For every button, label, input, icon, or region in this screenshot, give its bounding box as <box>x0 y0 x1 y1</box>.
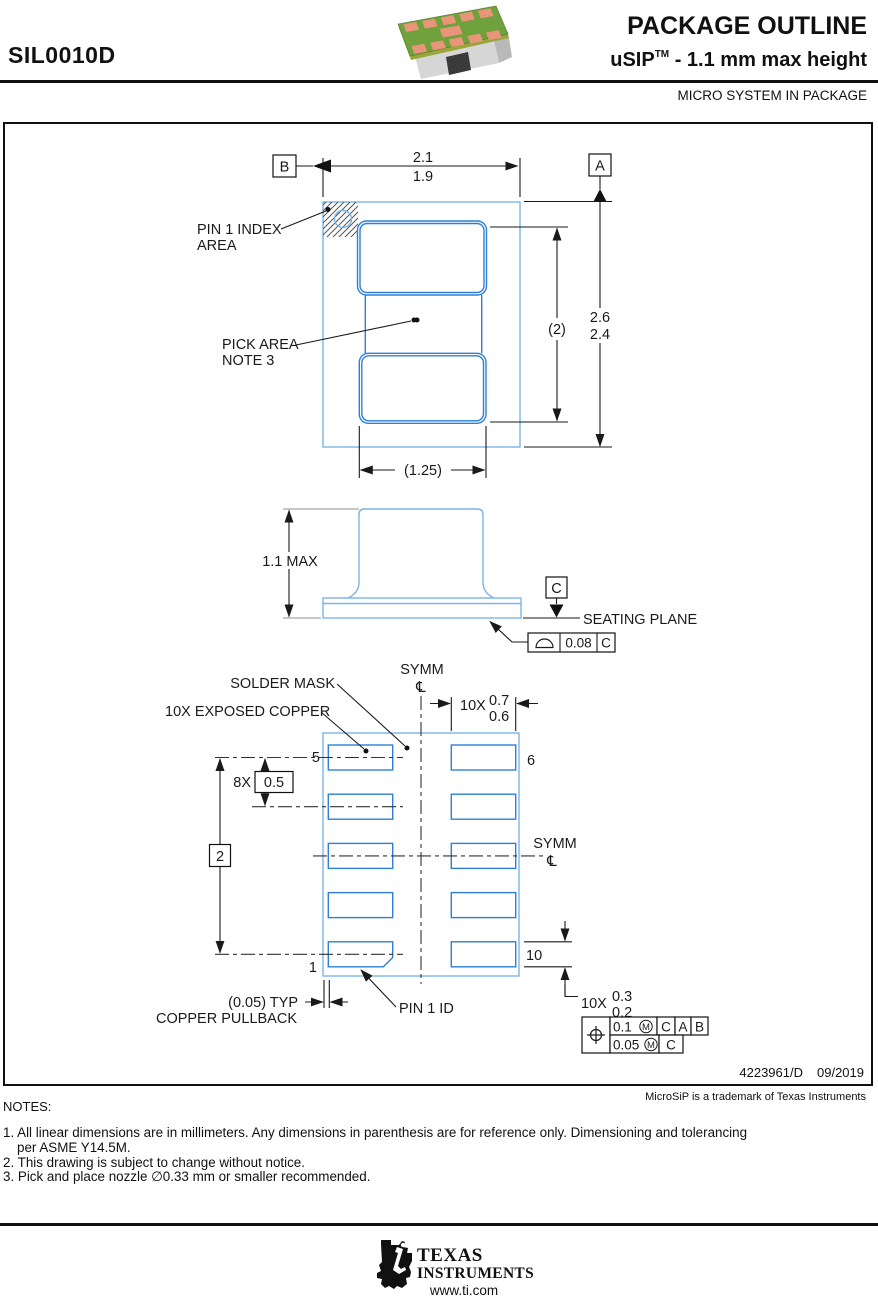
ti-logo-svg <box>0 0 878 1300</box>
ti-logo-icon <box>377 1240 412 1289</box>
ti-website-link[interactable]: www.ti.com <box>402 1283 526 1298</box>
ti-logo-line1: TEXAS <box>417 1245 534 1267</box>
ti-logo-text: TEXAS INSTRUMENTS <box>417 1245 534 1283</box>
page: { "header": { "part_number": "SIL0010D",… <box>0 0 878 1300</box>
ti-logo-line2: INSTRUMENTS <box>417 1265 534 1283</box>
